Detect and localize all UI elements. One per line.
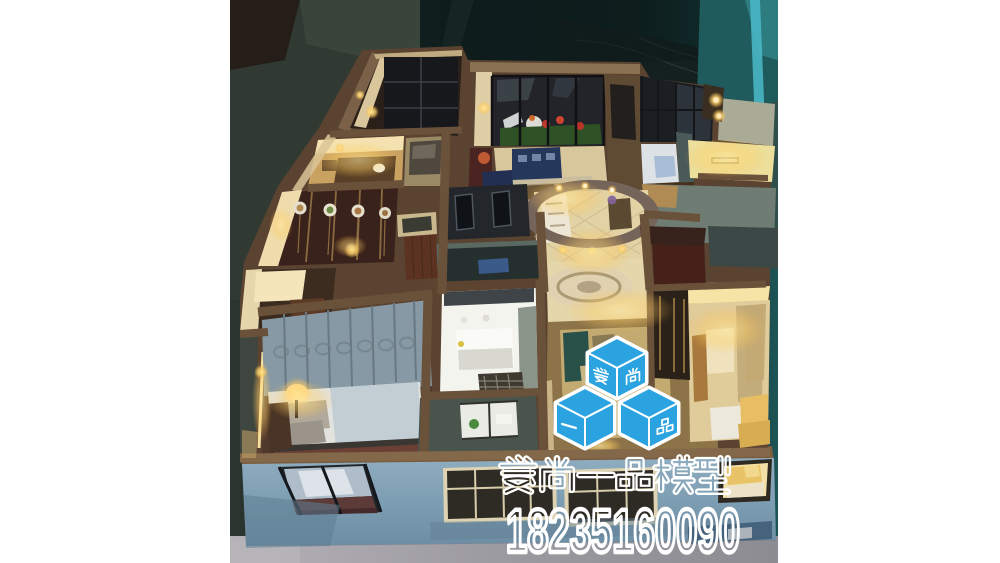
svg-text:18235160090: 18235160090: [506, 497, 740, 563]
